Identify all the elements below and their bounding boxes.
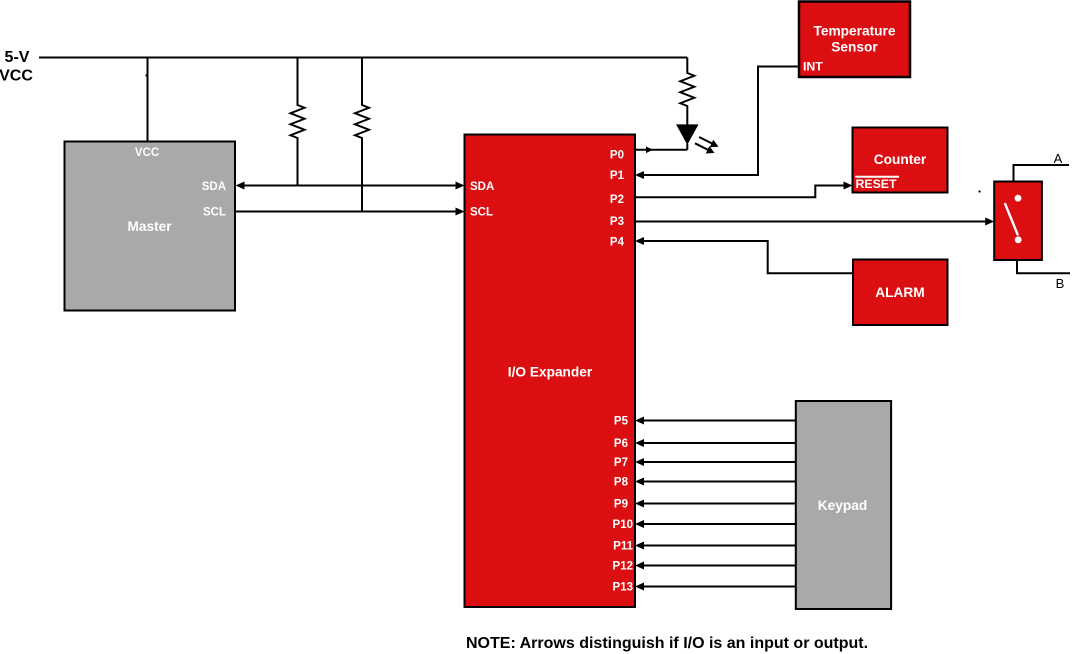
svg-text:P7: P7 (614, 457, 628, 469)
svg-text:Master: Master (127, 219, 172, 234)
svg-text:P6: P6 (614, 438, 628, 450)
svg-text:I/O Expander: I/O Expander (508, 364, 593, 379)
svg-text:P9: P9 (614, 499, 628, 511)
svg-text:P13: P13 (613, 582, 633, 594)
svg-text:NOTE: Arrows distinguish if I/: NOTE: Arrows distinguish if I/O is an in… (466, 635, 868, 652)
svg-text:Temperature: Temperature (814, 24, 896, 39)
svg-text:SDA: SDA (202, 181, 226, 193)
svg-text:A: A (1054, 151, 1063, 166)
svg-text:P10: P10 (613, 519, 633, 531)
svg-text:P8: P8 (614, 477, 629, 489)
svg-text:ALARM: ALARM (875, 285, 924, 300)
svg-text:RESET: RESET (856, 177, 897, 191)
svg-text:P3: P3 (610, 216, 624, 228)
svg-text:VCC: VCC (0, 68, 33, 85)
svg-text:VCC: VCC (135, 147, 159, 159)
svg-text:P4: P4 (610, 237, 625, 249)
svg-text:Counter: Counter (874, 152, 927, 167)
svg-text:SDA: SDA (470, 181, 494, 193)
svg-text:P11: P11 (613, 541, 633, 553)
svg-text:P12: P12 (613, 561, 633, 573)
svg-text:P5: P5 (614, 416, 629, 428)
svg-text:Keypad: Keypad (818, 498, 867, 513)
svg-text:Sensor: Sensor (831, 40, 878, 55)
svg-text:SCL: SCL (470, 207, 493, 219)
svg-text:B: B (1056, 276, 1065, 291)
svg-text:5-V: 5-V (5, 49, 30, 66)
svg-text:P0: P0 (610, 150, 624, 162)
svg-text:P2: P2 (610, 194, 624, 206)
svg-text:INT: INT (803, 60, 823, 74)
svg-text:P1: P1 (610, 170, 625, 182)
svg-text:SCL: SCL (203, 207, 226, 219)
